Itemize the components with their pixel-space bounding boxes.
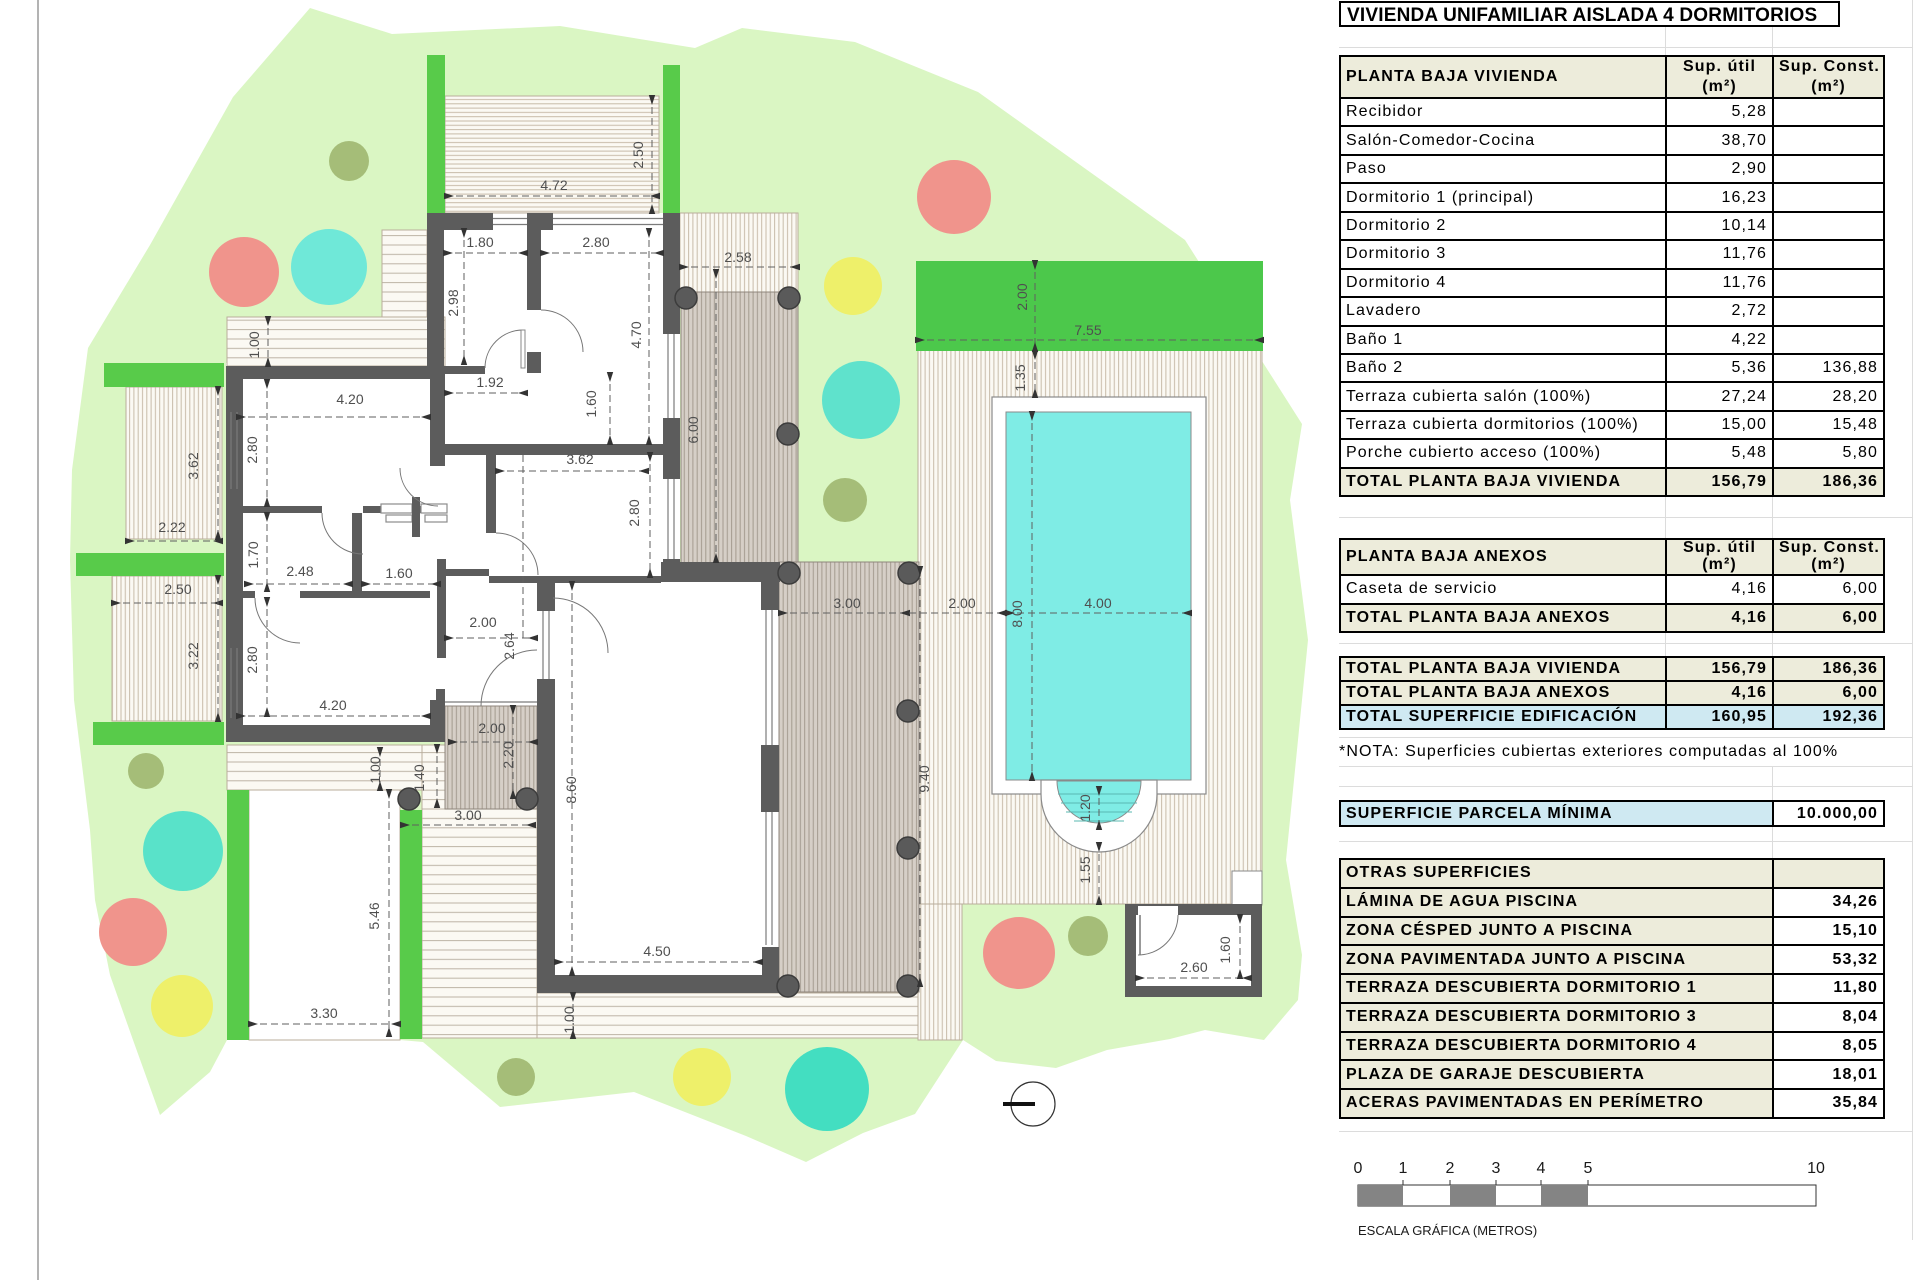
svg-text:4.20: 4.20	[336, 391, 363, 407]
svg-text:1.60: 1.60	[385, 565, 412, 581]
svg-text:6.00: 6.00	[685, 416, 701, 443]
svg-text:3.62: 3.62	[566, 451, 593, 467]
svg-text:1.60: 1.60	[583, 390, 599, 417]
svg-text:1.55: 1.55	[1077, 856, 1093, 883]
svg-text:2.58: 2.58	[724, 249, 751, 265]
svg-text:5: 5	[1584, 1160, 1593, 1177]
svg-text:5.46: 5.46	[366, 902, 382, 929]
svg-text:4.50: 4.50	[643, 943, 670, 959]
svg-text:1.00: 1.00	[367, 756, 383, 783]
svg-text:4.72: 4.72	[540, 177, 567, 193]
svg-text:1.00: 1.00	[246, 331, 262, 358]
svg-text:1.80: 1.80	[466, 234, 493, 250]
svg-text:1: 1	[1399, 1160, 1408, 1177]
svg-text:2.80: 2.80	[244, 646, 260, 673]
svg-text:2.00: 2.00	[948, 595, 975, 611]
svg-text:2.60: 2.60	[1180, 959, 1207, 975]
svg-text:3.22: 3.22	[185, 642, 201, 669]
svg-text:4: 4	[1537, 1160, 1546, 1177]
svg-text:2.20: 2.20	[500, 741, 516, 768]
svg-text:3.00: 3.00	[454, 807, 481, 823]
svg-text:2.50: 2.50	[630, 141, 646, 168]
svg-text:1.00: 1.00	[561, 1006, 577, 1033]
svg-text:3.00: 3.00	[833, 595, 860, 611]
svg-text:2.22: 2.22	[158, 519, 185, 535]
svg-text:1.70: 1.70	[245, 541, 261, 568]
svg-text:2.00: 2.00	[478, 720, 505, 736]
svg-text:7.55: 7.55	[1074, 322, 1101, 338]
svg-text:3.62: 3.62	[185, 452, 201, 479]
svg-text:2.00: 2.00	[1014, 283, 1030, 310]
svg-text:10: 10	[1807, 1160, 1825, 1177]
svg-text:2.80: 2.80	[582, 234, 609, 250]
svg-text:8.00: 8.00	[1009, 600, 1025, 627]
svg-text:2: 2	[1446, 1160, 1455, 1177]
svg-text:1.60: 1.60	[1217, 936, 1233, 963]
svg-text:9.40: 9.40	[916, 765, 932, 792]
svg-text:1.35: 1.35	[1012, 364, 1028, 391]
svg-text:1.40: 1.40	[411, 764, 427, 791]
svg-text:3.30: 3.30	[310, 1005, 337, 1021]
svg-text:8.60: 8.60	[563, 776, 579, 803]
svg-text:2.80: 2.80	[626, 499, 642, 526]
svg-text:ESCALA GRÁFICA (METROS): ESCALA GRÁFICA (METROS)	[1358, 1223, 1537, 1238]
svg-text:2.98: 2.98	[445, 289, 461, 316]
svg-text:2.00: 2.00	[469, 614, 496, 630]
svg-text:2.50: 2.50	[164, 581, 191, 597]
svg-text:1.92: 1.92	[476, 374, 503, 390]
svg-text:3: 3	[1492, 1160, 1501, 1177]
svg-text:4.70: 4.70	[628, 321, 644, 348]
svg-text:2.64: 2.64	[501, 632, 517, 659]
svg-text:0: 0	[1354, 1160, 1363, 1177]
svg-text:4.20: 4.20	[319, 697, 346, 713]
svg-text:2.48: 2.48	[286, 563, 313, 579]
svg-text:4.00: 4.00	[1084, 595, 1111, 611]
svg-text:1.20: 1.20	[1077, 794, 1093, 821]
svg-text:2.80: 2.80	[244, 436, 260, 463]
